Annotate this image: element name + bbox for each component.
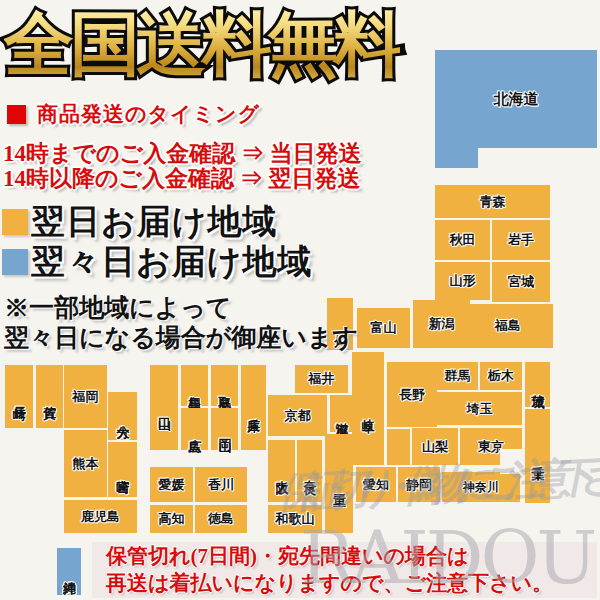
- prefecture-label: 島根: [186, 385, 204, 387]
- prefecture-label: 青森: [480, 193, 506, 211]
- map-block-nagasaki: 長崎: [5, 365, 33, 428]
- map-block-kyoto: 京都: [268, 395, 327, 436]
- map-block-kochi: 高知: [150, 505, 193, 533]
- map-block-nagano-south: [387, 429, 410, 465]
- legend-two-day: 翌々日お届け地域: [2, 239, 313, 285]
- prefecture-label: 山梨: [422, 438, 448, 456]
- prefecture-label: 宮崎: [114, 469, 132, 471]
- prefecture-label: 奈良: [301, 470, 319, 472]
- map-block-akita: 秋田: [435, 220, 490, 260]
- prefecture-label: 秋田: [450, 231, 476, 249]
- prefecture-label: 北海道: [494, 90, 539, 109]
- map-block-kumamoto: 熊本: [64, 430, 107, 497]
- map-block-osaka: 大阪: [268, 440, 295, 502]
- map-block-niigata: 新潟: [413, 300, 470, 348]
- prefecture-label: 岩手: [508, 231, 534, 249]
- prefecture-label: 長崎: [10, 396, 28, 398]
- map-block-saitama: 埼玉: [437, 392, 522, 425]
- map-block-fukui: 福井: [295, 365, 348, 393]
- prefecture-label: 京都: [285, 407, 311, 425]
- map-block-gunma: 群馬: [437, 362, 478, 390]
- map-block-hiroshima: 広島: [181, 408, 208, 450]
- map-block-tottori: 鳥取: [211, 365, 238, 406]
- prefecture-label: 神奈川: [463, 479, 499, 496]
- prefecture-label: 香川: [208, 476, 234, 494]
- map-block-gifu: 岐阜: [352, 352, 384, 465]
- tokyo-bay-notch: [500, 449, 522, 474]
- prefecture-label: 長野: [399, 386, 425, 404]
- map-block-yamaguchi: 山口: [150, 365, 178, 450]
- map-block-okayama: 岡山: [211, 408, 238, 450]
- shipping-timing-heading-label: 商品発送のタイミング: [37, 100, 260, 128]
- prefecture-label: 岐阜: [359, 408, 377, 410]
- map-block-fukuoka: 福岡: [64, 365, 107, 428]
- map-block-kagawa: 香川: [195, 467, 247, 502]
- map-block-oita: 大分: [108, 392, 137, 440]
- map-block-hokkaido: 北海道: [435, 50, 597, 148]
- prefecture-label: 群馬: [445, 367, 471, 385]
- prefecture-label: 熊本: [73, 455, 99, 473]
- prefecture-label: 山口: [155, 407, 173, 409]
- prefecture-label: 徳島: [208, 510, 234, 528]
- map-block-hokkaido-tab: [435, 148, 478, 168]
- timing-line-after-14: 14時以降のご入金確認 ⇒ 翌日発送: [3, 166, 362, 191]
- map-block-saga: 佐賀: [36, 365, 63, 428]
- prefecture-label: 山形: [450, 272, 476, 290]
- storage-warning-box: 保管切れ(7日間)・宛先間違いの場合は 再送は着払いになりますので、ご注意下さい…: [92, 542, 597, 598]
- red-square-bullet-icon: [7, 105, 26, 124]
- page-title: 全国送料無料 全国送料無料: [4, 0, 436, 90]
- map-block-wakayama: 和歌山: [268, 505, 322, 533]
- prefecture-label: 千葉: [529, 455, 547, 457]
- map-block-nara: 奈良: [297, 440, 322, 502]
- map-block-iwate: 岩手: [492, 220, 550, 260]
- prefecture-label: 埼玉: [467, 400, 493, 418]
- map-block-ibaraki: 茨城: [525, 362, 550, 407]
- prefecture-label: 福岡: [73, 388, 99, 406]
- prefecture-label: 高知: [159, 510, 185, 528]
- prefecture-label: 兵庫: [245, 407, 263, 409]
- map-block-toyama: 富山: [357, 308, 410, 348]
- timing-line-before-14: 14時までのご入金確認 ⇒ 当日発送: [3, 141, 362, 166]
- two-day-color-swatch: [2, 249, 28, 275]
- two-day-label: 翌々日お届け地域: [31, 239, 313, 285]
- map-block-nagano: 長野: [387, 362, 437, 427]
- prefecture-label: 茨城: [529, 384, 547, 386]
- map-block-ehime: 愛媛: [150, 467, 193, 502]
- map-block-aichi: 愛知: [356, 467, 396, 502]
- prefecture-label: 滋賀: [333, 413, 351, 415]
- prefecture-label: 静岡: [406, 476, 432, 494]
- map-block-miyazaki: 宮崎: [108, 442, 137, 497]
- map-block-okinawa: 沖縄: [57, 548, 81, 595]
- prefecture-label: 富山: [371, 319, 397, 337]
- page-title-text: 全国送料無料: [4, 0, 400, 88]
- map-block-kanagawa: 神奈川: [442, 472, 520, 502]
- map-block-miyagi: 宮城: [492, 262, 550, 302]
- prefecture-label: 愛媛: [159, 476, 185, 494]
- shipping-timing-lines: 14時までのご入金確認 ⇒ 当日発送 14時以降のご入金確認 ⇒ 翌日発送: [3, 141, 362, 191]
- shipping-infographic: 全国送料無料 全国送料無料 商品発送のタイミング 14時までのご入金確認 ⇒ 当…: [0, 0, 600, 600]
- prefecture-label: 新潟: [429, 315, 455, 333]
- warning-line2: 再送は着払いになりますので、ご注意下さい。: [106, 570, 597, 597]
- prefecture-label: 愛知: [363, 476, 389, 494]
- prefecture-label: 大分: [114, 415, 132, 417]
- map-block-chiba: 千葉: [525, 409, 550, 503]
- prefecture-label: 福井: [309, 370, 335, 388]
- map-block-yamagata: 山形: [435, 262, 490, 300]
- map-block-hyogo: 兵庫: [241, 365, 266, 450]
- region-note-line2: 翌々日になる場合が御座います: [4, 323, 358, 353]
- region-note: ※一部地域によって 翌々日になる場合が御座います: [4, 293, 358, 353]
- prefecture-label: 鳥取: [216, 385, 234, 387]
- prefecture-label: 和歌山: [276, 510, 315, 528]
- map-block-kagoshima: 鹿児島: [64, 500, 137, 533]
- shipping-timing-heading: 商品発送のタイミング: [7, 100, 260, 128]
- map-block-shizuoka: 静岡: [398, 467, 440, 502]
- prefecture-label: 岡山: [216, 428, 234, 430]
- prefecture-label: 栃木: [488, 367, 514, 385]
- warning-line1: 保管切れ(7日間)・宛先間違いの場合は: [106, 543, 597, 570]
- map-block-shiga: 滋賀: [330, 395, 353, 432]
- prefecture-label: 三重: [330, 483, 348, 485]
- map-block-fukushima: 福島: [463, 304, 553, 348]
- prefecture-label: 大阪: [273, 470, 291, 472]
- map-block-yamanashi: 山梨: [412, 428, 458, 465]
- next-day-color-swatch: [2, 209, 28, 235]
- map-block-tokushima: 徳島: [195, 505, 247, 533]
- region-note-line1: ※一部地域によって: [4, 293, 358, 323]
- prefecture-label: 鹿児島: [81, 508, 120, 526]
- map-block-aomori: 青森: [435, 185, 550, 218]
- map-block-mie: 三重: [325, 434, 353, 533]
- prefecture-label: 沖縄: [60, 571, 78, 573]
- map-block-shimane: 島根: [181, 365, 208, 406]
- prefecture-label: 宮城: [508, 273, 534, 291]
- map-block-tochigi: 栃木: [480, 362, 522, 390]
- prefecture-label: 福島: [495, 317, 521, 335]
- prefecture-label: 佐賀: [41, 396, 59, 398]
- prefecture-label: 広島: [186, 428, 204, 430]
